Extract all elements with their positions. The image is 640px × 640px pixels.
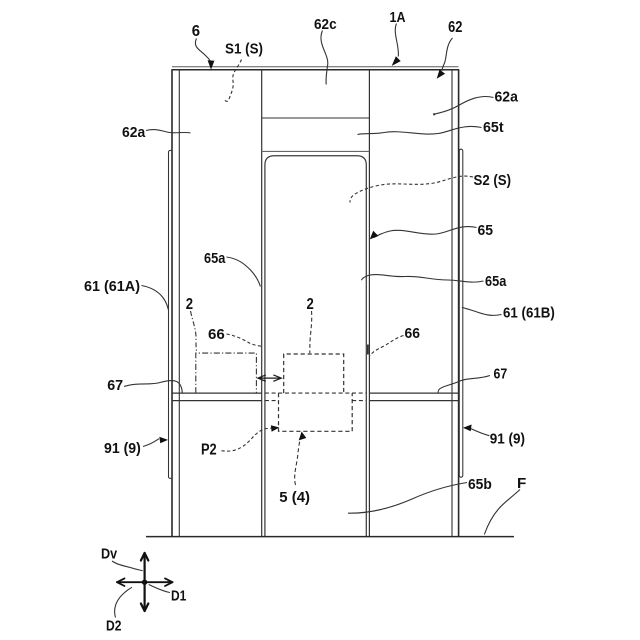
svg-text:D1: D1 bbox=[171, 587, 186, 604]
svg-text:65a: 65a bbox=[485, 273, 507, 290]
svg-text:S1 (S): S1 (S) bbox=[225, 41, 263, 58]
svg-text:65a: 65a bbox=[204, 250, 226, 267]
svg-text:91 (9): 91 (9) bbox=[490, 431, 525, 448]
svg-text:91 (9): 91 (9) bbox=[104, 440, 141, 457]
svg-text:S2 (S): S2 (S) bbox=[474, 172, 512, 189]
svg-text:D2: D2 bbox=[106, 617, 121, 634]
svg-text:66: 66 bbox=[405, 325, 421, 342]
svg-text:67: 67 bbox=[494, 365, 508, 382]
svg-text:61 (61B): 61 (61B) bbox=[503, 304, 555, 321]
svg-text:62: 62 bbox=[448, 19, 462, 36]
svg-text:5 (4): 5 (4) bbox=[279, 489, 310, 506]
svg-text:62a: 62a bbox=[122, 124, 146, 141]
svg-text:P2: P2 bbox=[201, 442, 217, 459]
svg-text:65t: 65t bbox=[483, 119, 504, 136]
svg-text:66: 66 bbox=[208, 326, 225, 343]
svg-text:65b: 65b bbox=[468, 476, 492, 493]
svg-text:67: 67 bbox=[107, 377, 123, 394]
svg-text:Dv: Dv bbox=[101, 546, 118, 563]
svg-text:6: 6 bbox=[192, 23, 200, 40]
svg-text:1A: 1A bbox=[390, 9, 406, 26]
svg-text:62c: 62c bbox=[314, 16, 337, 33]
svg-text:2: 2 bbox=[186, 296, 193, 313]
svg-text:2: 2 bbox=[307, 296, 314, 313]
svg-text:F: F bbox=[517, 475, 526, 492]
svg-text:65: 65 bbox=[478, 222, 494, 239]
svg-text:61 (61A): 61 (61A) bbox=[84, 278, 140, 295]
svg-text:62a: 62a bbox=[495, 89, 519, 106]
